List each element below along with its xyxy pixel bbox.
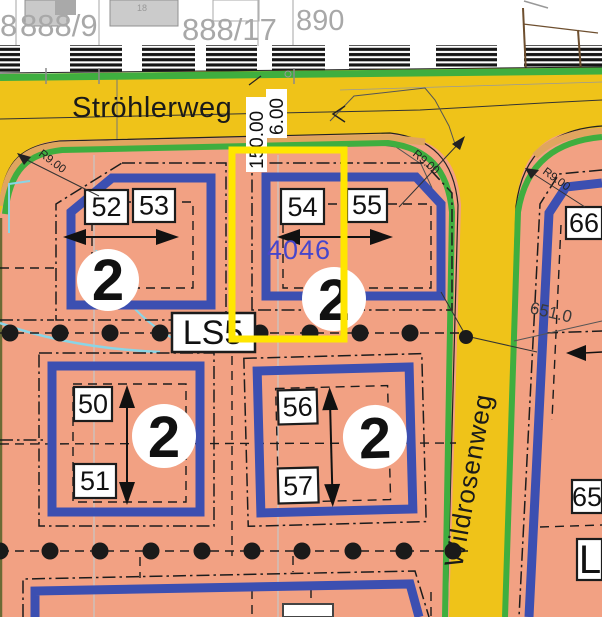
parcel-label: 888/17 (182, 12, 277, 47)
ls5-label: LS5 (172, 313, 255, 352)
zone-label-partial: L (579, 538, 601, 582)
plot-number: 52 (91, 192, 121, 222)
storey-count: 2 (148, 405, 180, 470)
storey-count: 2 (358, 406, 392, 472)
dimension-length: 150.00 (247, 111, 268, 169)
plot-number: 66 (569, 208, 599, 238)
boundary-point (459, 330, 473, 344)
plot-number: 54 (287, 192, 317, 222)
zoning-plan-map: 18 8 888/9 888/17 890 (0, 0, 602, 617)
plot-number: 57 (283, 471, 314, 502)
parcel-label: 888/9 (20, 8, 98, 43)
dimension-width: 6.00 (267, 98, 288, 135)
parcel-label: 890 (296, 5, 344, 37)
plot-number: 53 (139, 191, 169, 221)
plot-number: 65 (572, 482, 602, 512)
map-canvas[interactable]: 18 8 888/9 888/17 890 (0, 0, 602, 617)
parcel-number: 4046 (267, 235, 331, 265)
plot-number: 50 (78, 389, 108, 419)
plot-number-box (283, 604, 333, 617)
plot-number: 56 (282, 392, 313, 423)
building-number: 18 (137, 3, 147, 13)
plot-number: 55 (352, 190, 382, 220)
parcel-label: 8 (0, 8, 17, 43)
plot-number: 51 (80, 466, 110, 496)
storey-count: 2 (92, 248, 124, 313)
street-name-horizontal: Ströhlerweg (72, 92, 232, 124)
